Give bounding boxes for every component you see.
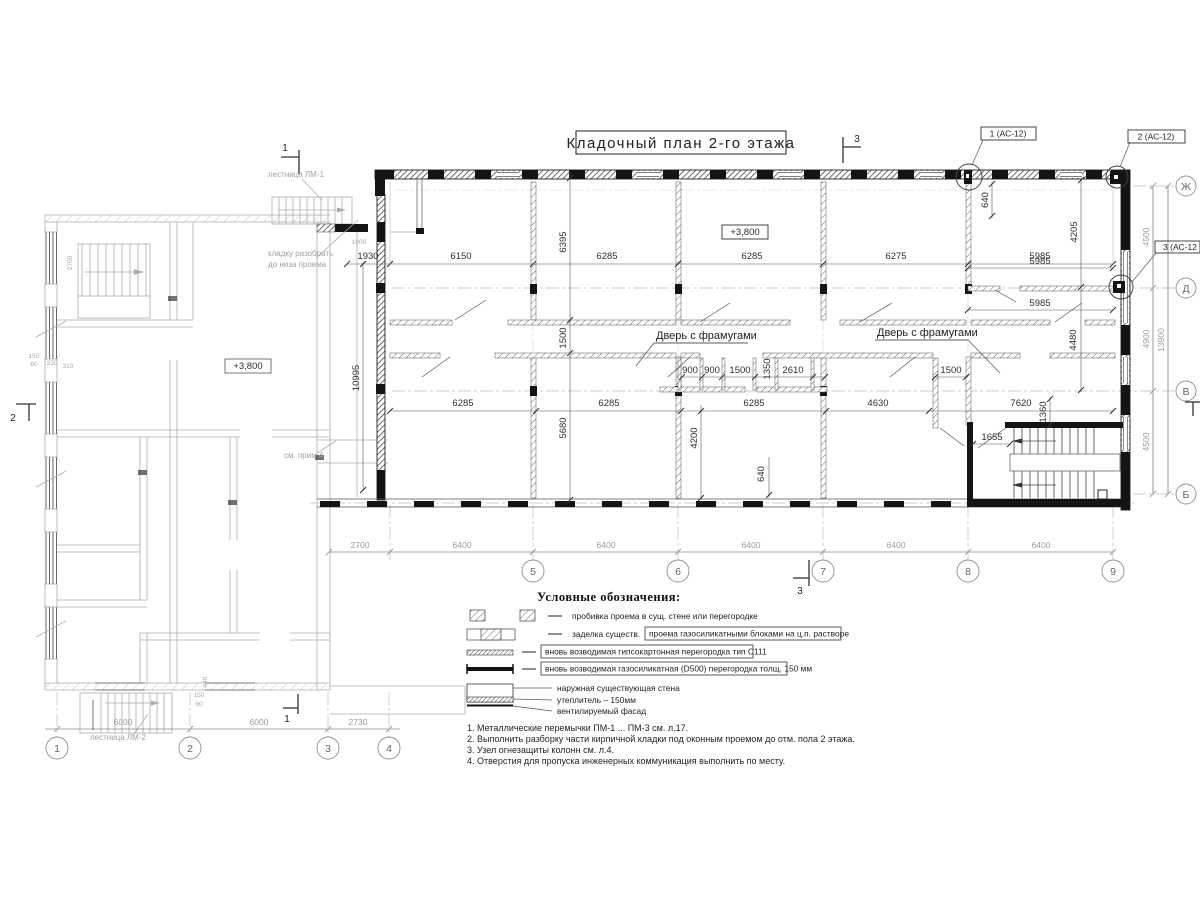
legend: Условные обозначения: пробивка проема в … — [467, 590, 849, 716]
dim: 5985 — [1029, 298, 1050, 309]
note-4: 4. Отверстия для пропуска инженерных ком… — [467, 756, 785, 766]
axis-label: 5 — [530, 566, 536, 578]
door-label-1: Дверь с фрамугами — [656, 330, 757, 342]
dim: 4200 — [689, 427, 700, 448]
section-3-bottom: 3 — [797, 586, 803, 597]
dim: 1350 — [762, 358, 773, 379]
dim: 6275 — [885, 251, 906, 262]
legend-item-3-boxed: вновь возводимая гипсокартонная перегоро… — [545, 647, 767, 657]
axis-label: 1 — [54, 743, 60, 755]
dim: 13900 — [1156, 328, 1166, 352]
dim: 5680 — [558, 417, 569, 438]
dim: 4630 — [867, 398, 888, 409]
drawing-title: Кладочный план 2-го этажа — [567, 131, 796, 154]
axis-label: 3 — [325, 743, 331, 755]
dim: 6000 — [250, 717, 269, 727]
dim: 7620 — [1010, 398, 1031, 409]
dim: 6285 — [596, 251, 617, 262]
dim: 1930 — [357, 251, 378, 262]
elevation-main: +3,800 — [722, 225, 768, 239]
dim: 10995 — [351, 365, 362, 391]
axis-label: Ж — [1181, 181, 1191, 193]
dim: 1500 — [558, 327, 569, 348]
dim: 6400 — [1032, 540, 1051, 550]
dim: 2750 — [67, 255, 74, 270]
dim: 230 — [47, 360, 58, 367]
note-3: 3. Узел огнезащиты колонн см. л.4. — [467, 745, 614, 755]
callout-1-label: 1 (АС-12) — [990, 129, 1027, 139]
axis-label: 4 — [386, 743, 392, 755]
stair-internal — [78, 244, 150, 318]
axis-label: Д — [1182, 283, 1189, 295]
axis-label: 7 — [820, 566, 826, 578]
dim: 6400 — [453, 540, 472, 550]
dim: 900 — [682, 365, 698, 376]
legend-heading: Условные обозначения: — [537, 590, 681, 604]
legend-item-2-boxed: проема газосиликатными блоками на ц.п. р… — [649, 629, 849, 639]
dim: 900 — [704, 365, 720, 376]
dim: 6400 — [597, 540, 616, 550]
dim: 90 — [195, 701, 203, 708]
left-wall-windows — [36, 232, 66, 659]
legend-item-4-boxed: вновь возводимая газосиликатная (D500) п… — [545, 664, 812, 674]
callout-2-label: 2 (АС-12) — [1138, 132, 1175, 142]
legend-wall-1: наружная существующая стена — [557, 683, 680, 693]
axis-label: 8 — [965, 566, 971, 578]
section-3-top: 3 — [854, 134, 860, 145]
stair-lm1-label: лестница ЛМ-1 — [268, 170, 325, 179]
masonry-plan-drawing: +3,800 +3,800 1930 6150 6285 6285 6275 5… — [0, 0, 1200, 900]
notes: 1. Металлические перемычки ПМ-1 ... ПМ-3… — [467, 723, 855, 766]
dim: 4500 — [1141, 432, 1151, 451]
dim: 6395 — [558, 231, 569, 252]
dim: 6285 — [741, 251, 762, 262]
stair-lm1 — [272, 197, 368, 232]
axis-label: Б — [1183, 489, 1190, 501]
door-swings — [422, 290, 1082, 448]
dim: 6400 — [742, 540, 761, 550]
dim: 1500 — [940, 365, 961, 376]
note-2: 2. Выполнить разборку части кирпичной кл… — [467, 734, 855, 744]
page-title: Кладочный план 2-го этажа — [567, 135, 796, 152]
dim: 150 — [29, 353, 40, 360]
dim: 640 — [980, 192, 991, 208]
dim: 4900 — [1141, 329, 1151, 348]
dim: 1500 — [729, 365, 750, 376]
legend-item-2-plain: заделка существ. — [572, 629, 640, 639]
dim: 6285 — [598, 398, 619, 409]
dim: 310 — [63, 363, 74, 370]
axis-label: 6 — [675, 566, 681, 578]
axis-label: В — [1182, 386, 1189, 398]
demolish-note-line2: до низа проема — [268, 260, 327, 269]
door-label-2: Дверь с фрамугами — [877, 327, 978, 339]
section-1-top: 1 — [282, 143, 288, 154]
demolish-note-line1: кладку разобрать — [268, 249, 333, 258]
stair-lm2 — [80, 693, 172, 734]
dim: 6400 — [887, 540, 906, 550]
dim: 60 — [30, 361, 38, 368]
dim: 4205 — [1069, 221, 1080, 242]
elevation-left-value: +3,800 — [233, 361, 262, 372]
dim: 6150 — [450, 251, 471, 262]
dim: 1360 — [1038, 401, 1049, 422]
junction — [317, 180, 465, 714]
dim: 6285 — [743, 398, 764, 409]
dim: 2730 — [349, 717, 368, 727]
legend-wall-symbol — [467, 684, 552, 711]
elevation-left: +3,800 — [225, 359, 271, 373]
dim: 1000 — [352, 239, 367, 246]
dim: 640 — [756, 466, 767, 482]
callouts: 1 (АС-12) 2 (АС-12) 3 (АС-12 — [956, 127, 1200, 299]
callout-3-label: 3 (АС-12 — [1163, 242, 1197, 252]
dim: 5985 — [1029, 256, 1050, 267]
legend-wall-3: вентилируемый фасад — [557, 706, 646, 716]
dim: 150 — [194, 692, 205, 699]
axis-label: 9 — [1110, 566, 1116, 578]
section-2-left: 2 — [10, 413, 16, 424]
stair-lm2-label: лестница ЛМ-2 — [90, 733, 147, 742]
dim: 4500 — [1141, 227, 1151, 246]
dim: 2610 — [782, 365, 803, 376]
dim: 1655 — [981, 432, 1002, 443]
dim: 6000 — [114, 717, 133, 727]
legend-item-1: пробивка проема в сущ. стене или перегор… — [572, 611, 758, 621]
dim: 4480 — [1068, 329, 1079, 350]
axis-label: 2 — [187, 743, 193, 755]
note-1: 1. Металлические перемычки ПМ-1 ... ПМ-3… — [467, 723, 688, 733]
legend-wall-2: утеплитель – 150мм — [557, 695, 636, 705]
dim: 440 — [202, 676, 209, 687]
section-1-bottom: 1 — [284, 714, 290, 725]
left-existing-building — [36, 180, 465, 734]
elevation-main-value: +3,800 — [730, 227, 759, 238]
dim: 6285 — [452, 398, 473, 409]
dim: 2700 — [351, 540, 370, 550]
